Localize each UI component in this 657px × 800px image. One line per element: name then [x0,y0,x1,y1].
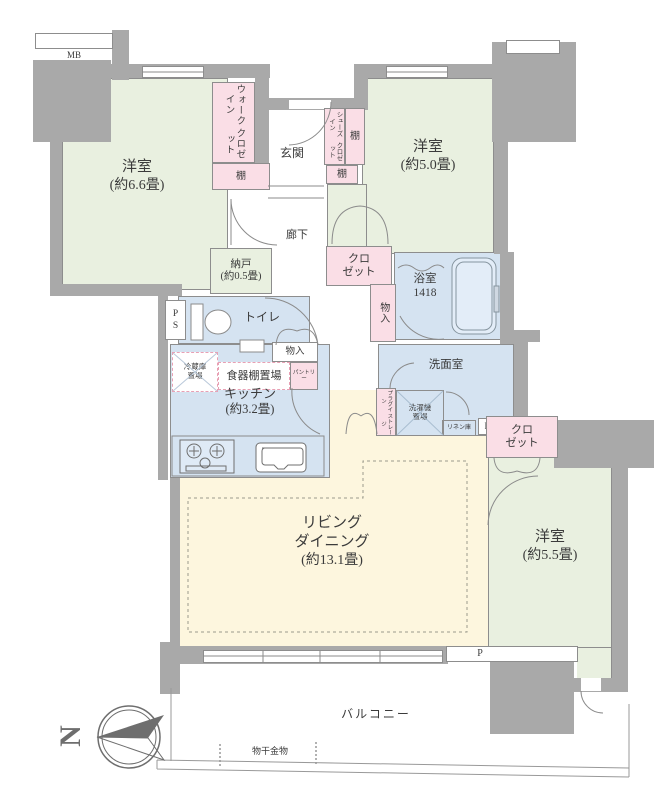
washroom-label: 洗面室 [406,358,486,372]
window-bedroom-5-0 [386,66,448,78]
compass-icon [97,706,164,768]
balcony-text: バルコニー [341,707,411,721]
shoes-in-closet-label-2: クロゼット [327,139,342,164]
storeroom-size: (約0.5畳) [220,271,261,283]
bedroom-6-6-label: 洋室 (約6.6畳) [77,158,197,194]
wall-balcony-pillar [490,658,574,734]
pillar-label: P [462,648,498,661]
plugin-storage-label-2: ストレージ [380,412,393,435]
kitchen-size: (約3.2畳) [190,402,310,418]
hallway-text: 廊下 [286,229,308,241]
meter-box [35,33,113,49]
closet-hall: クロ ゼット [326,246,392,286]
bathroom-label: 浴室 1418 [396,272,454,301]
wall-block-top-right [492,42,576,142]
meter-box-label: MB [35,50,113,61]
north-text: N [54,725,87,747]
bedroom-5-0-size: (約5.0畳) [358,157,498,175]
shelf-wic: 棚 [212,163,270,190]
toilet-text: トイレ [244,310,280,324]
bedroom-6-6-size: (約6.6畳) [77,177,197,195]
closet-right-label-2: ゼット [506,437,539,450]
laundry-hanger-label: 物干金物 [238,746,302,757]
balcony-label: バルコニー [336,707,416,722]
laundry-hanger-text: 物干金物 [252,746,288,756]
washer-space: 洗濯機 置場 [396,390,444,436]
shelf-label: 棚 [337,169,347,181]
storage-small-center: 物入 [272,342,318,362]
toilet-label: トイレ [228,310,296,325]
pipe-space-left-p: P [173,308,178,320]
bedroom-6-6-door-arc [231,199,277,245]
living-name-1: リビング [252,514,412,533]
pipe-space-left-s: S [173,320,178,332]
storeroom: 納戸 (約0.5畳) [210,248,272,294]
closet-right: クロ ゼット [486,416,558,458]
window-bedroom-6-6 [142,66,204,78]
wall-block-bedroom-5-5-top [554,420,654,468]
bedroom-5-5-name: 洋室 [488,528,612,547]
bathroom-name: 浴室 [396,272,454,286]
walk-in-closet-label-1: ウォークイン [223,83,245,126]
room-bedroom-5-5-tab [577,648,612,680]
wall-step-bottom-left [160,642,180,694]
walk-in-closet: ウォークイン クロゼット [212,82,255,163]
room-living-tab1 [330,390,378,478]
bedroom-6-6-name: 洋室 [77,158,197,177]
living-size: (約13.1畳) [252,552,412,570]
walk-in-closet-label-2: クロゼット [223,126,245,162]
pipe-space-left: P S [165,300,186,340]
closet-label-2: ゼット [343,266,376,279]
bedroom-5-5-label: 洋室 (約5.5畳) [488,528,612,564]
washer-label-2: 置場 [413,413,428,422]
kitchen-label: キッチン (約3.2畳) [190,386,310,418]
plugin-storage-label-1: プラグイン [380,389,393,412]
washroom-text: 洗面室 [429,359,464,371]
meter-box-text: MB [67,50,81,60]
wall-wic-entrance [255,78,269,164]
shelf-label: 棚 [236,171,246,183]
storage-small-label: 物入 [285,347,304,358]
entrance-text: 玄関 [280,146,304,160]
wall-step-below-bath [500,330,540,342]
shoes-in-closet: シューズイン クロゼット [324,108,345,165]
shelf-bottom: 棚 [326,165,358,184]
hallway-label: 廊下 [275,229,319,243]
living-label: リビング ダイニング (約13.1畳) [252,514,412,569]
storage-small-label: 物入 [377,302,389,324]
bedroom-5-0-label: 洋室 (約5.0畳) [358,138,498,174]
living-name-2: ダイニング [252,533,412,552]
entrance-label: 玄関 [270,146,314,161]
closet-label-1: クロ [348,253,370,266]
bedroom-5-0-name: 洋室 [358,138,498,157]
floor-plan: ウォークイン クロゼット 棚 シューズイン クロゼット 棚 棚 納戸 (約0.5… [0,0,657,800]
room-bedroom-5-0-ext [327,184,367,253]
shoes-in-closet-label-1: シューズイン [327,109,342,139]
bathroom-size: 1418 [396,286,454,300]
window-living [203,650,443,663]
pillar-text: P [477,648,483,659]
kitchen-name: キッチン [190,386,310,402]
closet-right-label-1: クロ [511,424,533,437]
window-top-right-block [506,40,560,54]
balcony-door-arc [581,691,603,713]
bedroom-5-5-size: (約5.5畳) [488,547,612,565]
room-living-tab2 [378,436,488,478]
refrigerator-label-2: 置場 [188,372,203,381]
storage-small-right: 物入 [370,284,396,342]
storeroom-label: 納戸 [231,259,252,271]
wall-right-washroom [514,342,528,424]
linen-label: リネン庫 [447,425,471,432]
wall-left-living [170,478,180,648]
wall-right-bedroom-5-5 [612,456,628,692]
wall-step-entrance-right [354,76,368,110]
entrance-step-lines [268,186,324,198]
wall-left-bedroom-6-6 [50,78,62,288]
balcony-door-opening [581,678,601,691]
pantry-label: パントリー [291,370,317,383]
plugin-storage: プラグイン ストレージ [376,388,396,436]
north-label: N [52,716,92,756]
cupboard-label: 食器棚置場 [227,370,282,383]
linen-cabinet: リネン庫 [442,420,476,436]
